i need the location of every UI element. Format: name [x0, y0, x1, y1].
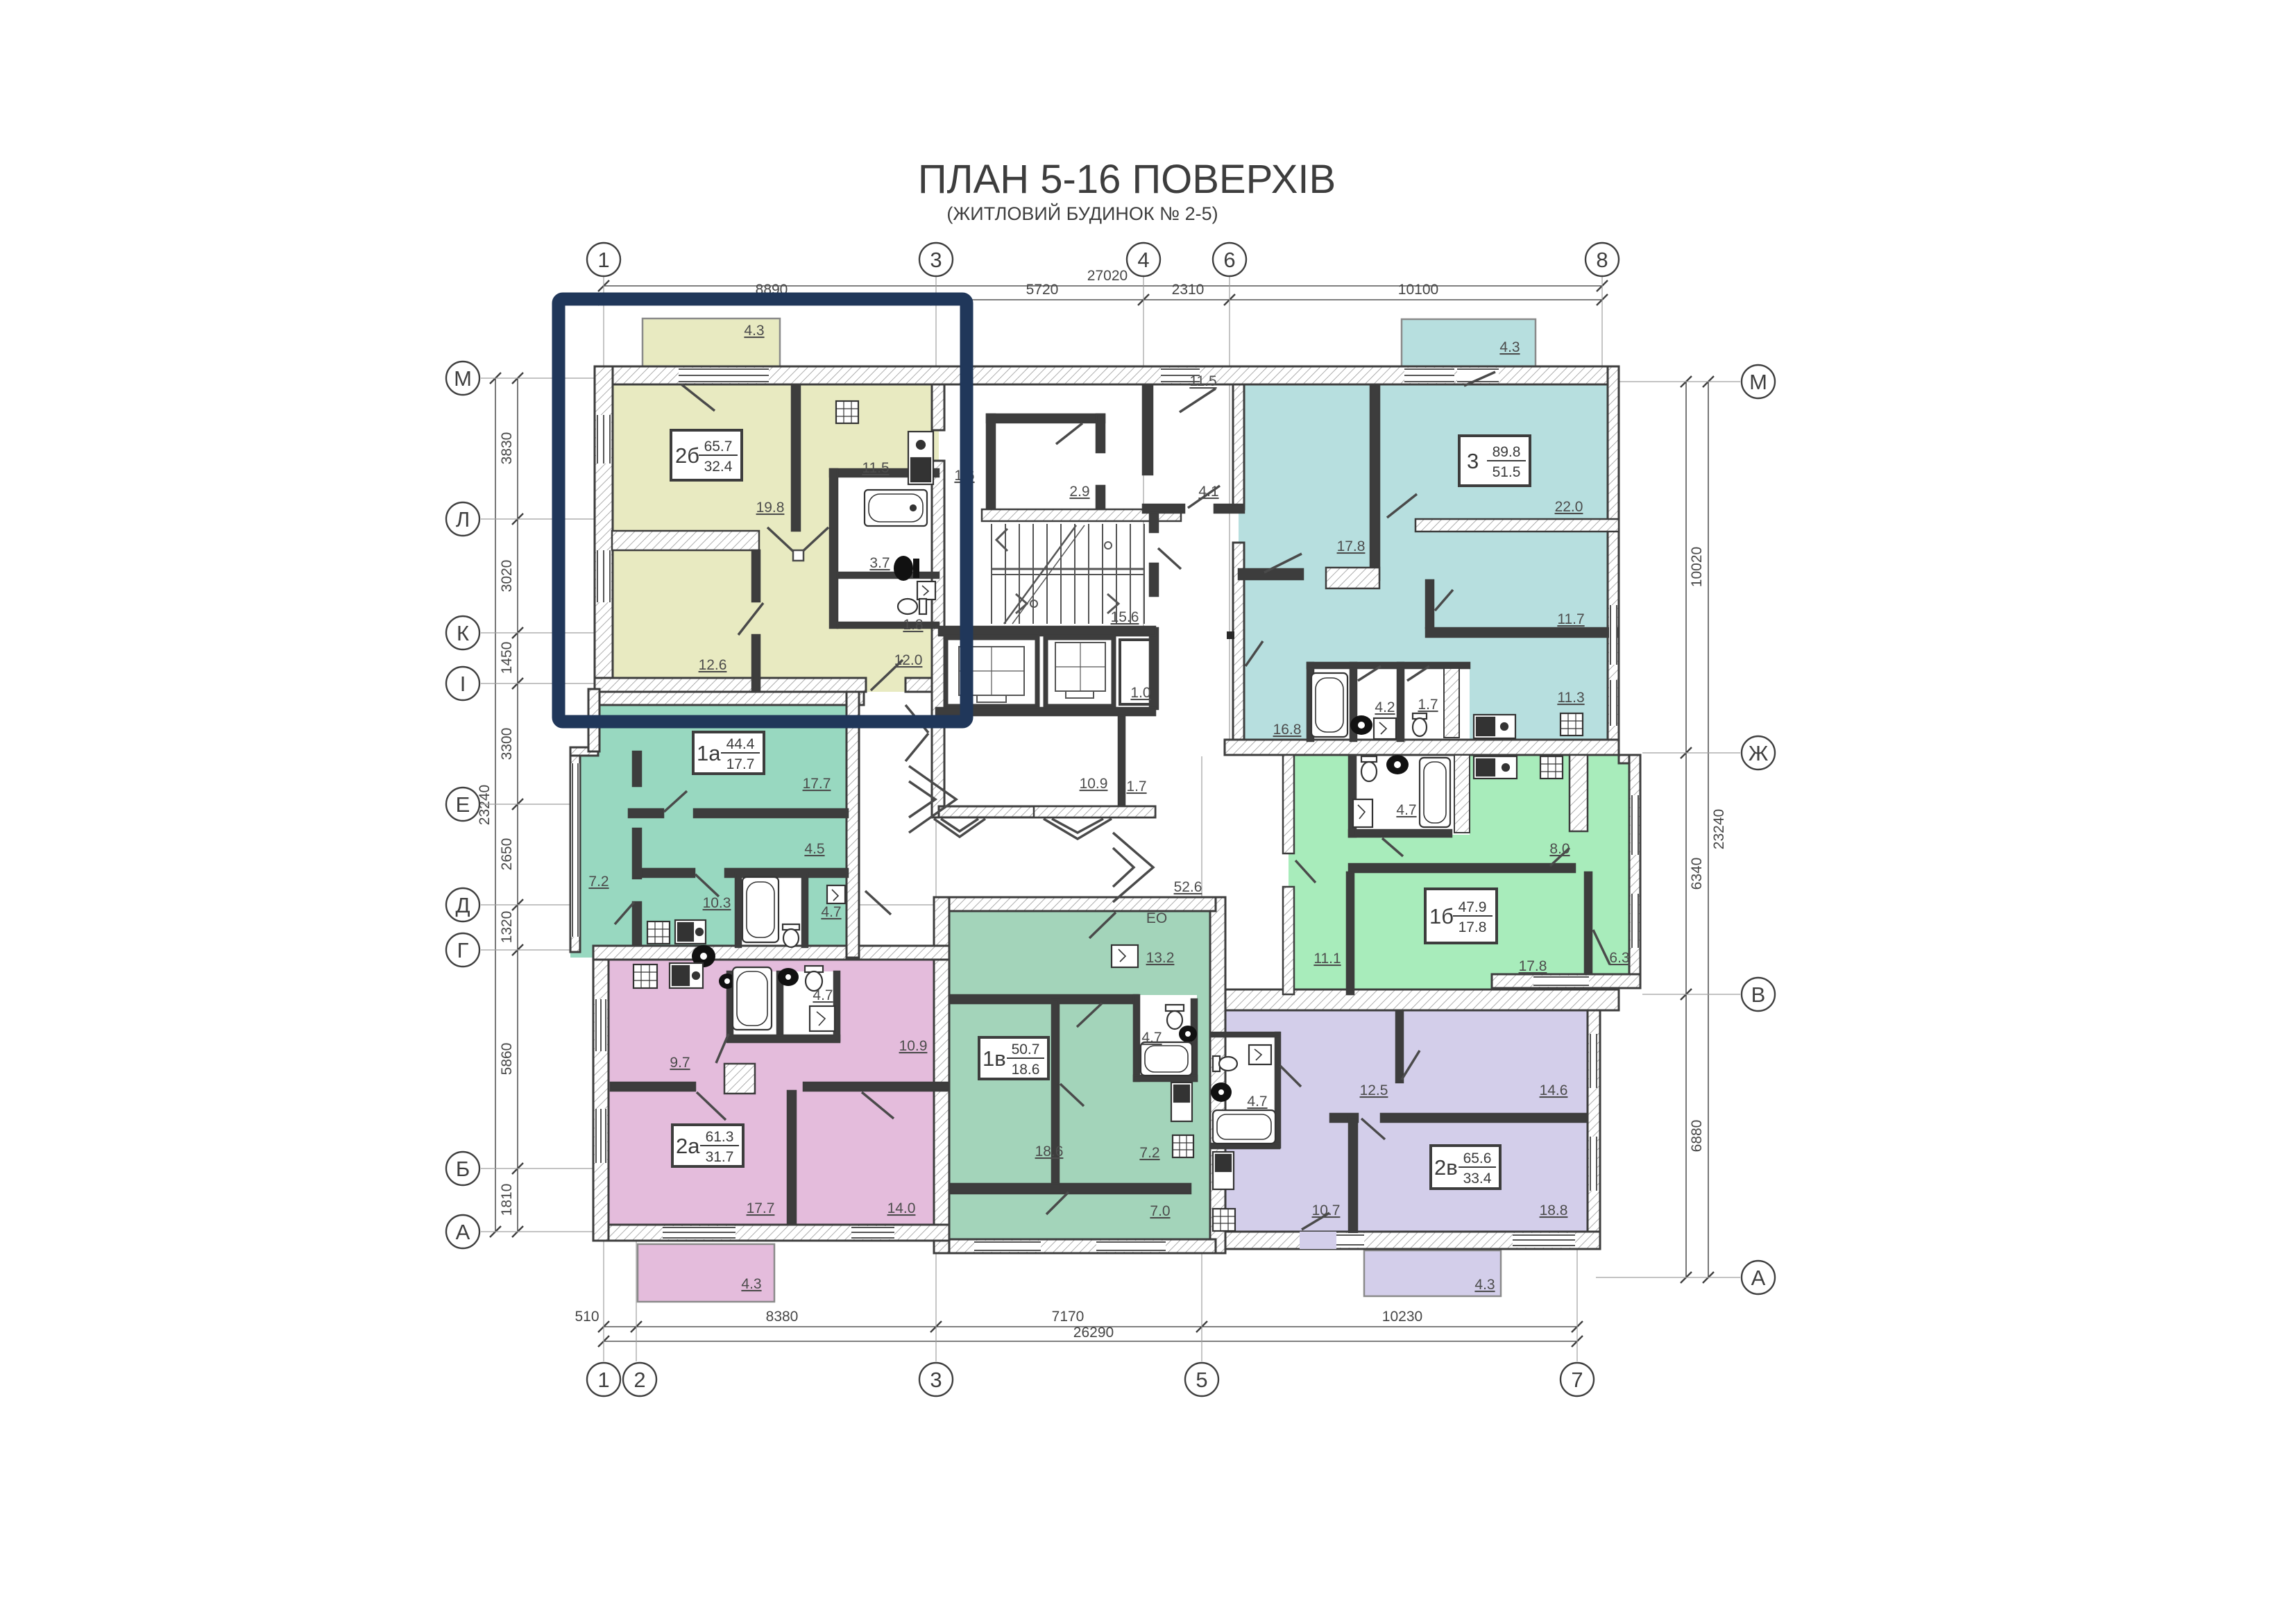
svg-text:Ж: Ж — [1749, 741, 1769, 765]
svg-text:11.3: 11.3 — [1557, 690, 1584, 706]
svg-text:6340: 6340 — [1689, 858, 1705, 890]
svg-text:Г: Г — [457, 938, 469, 962]
svg-text:31.7: 31.7 — [706, 1149, 734, 1165]
svg-text:1.7: 1.7 — [1418, 697, 1438, 713]
svg-text:М: М — [1749, 370, 1767, 394]
svg-text:Л: Л — [456, 507, 470, 532]
svg-text:2б: 2б — [675, 443, 699, 468]
svg-text:6880: 6880 — [1689, 1120, 1705, 1153]
svg-text:27020: 27020 — [1087, 268, 1128, 284]
svg-text:15.6: 15.6 — [1111, 609, 1139, 625]
svg-text:ПЛАН 5-16 ПОВЕРХІВ: ПЛАН 5-16 ПОВЕРХІВ — [918, 157, 1336, 202]
svg-text:1а: 1а — [697, 741, 721, 765]
svg-text:7.2: 7.2 — [1139, 1145, 1159, 1161]
svg-text:51.5: 51.5 — [1493, 464, 1521, 480]
svg-text:1: 1 — [597, 1368, 609, 1392]
svg-text:18.8: 18.8 — [1540, 1203, 1568, 1218]
svg-text:4.3: 4.3 — [1499, 339, 1520, 355]
svg-text:А: А — [456, 1220, 470, 1244]
svg-text:4.7: 4.7 — [1396, 802, 1416, 818]
svg-text:4.3: 4.3 — [741, 1276, 761, 1292]
svg-text:4.1: 4.1 — [1198, 484, 1218, 500]
svg-text:12.0: 12.0 — [894, 652, 923, 668]
svg-text:6: 6 — [1223, 248, 1235, 272]
svg-text:4.7: 4.7 — [1247, 1094, 1267, 1110]
svg-text:2: 2 — [633, 1368, 645, 1392]
svg-text:4.3: 4.3 — [1474, 1277, 1495, 1293]
svg-text:2.9: 2.9 — [1069, 484, 1089, 500]
svg-text:Е: Е — [456, 792, 470, 817]
svg-text:4.7: 4.7 — [813, 987, 833, 1003]
svg-text:8380: 8380 — [766, 1309, 799, 1325]
svg-text:26290: 26290 — [1073, 1325, 1114, 1341]
svg-text:32.4: 32.4 — [704, 459, 733, 475]
svg-text:3830: 3830 — [499, 432, 515, 465]
svg-text:18.6: 18.6 — [1035, 1144, 1064, 1159]
svg-text:В: В — [1751, 983, 1766, 1007]
svg-text:10.7: 10.7 — [1312, 1203, 1341, 1218]
svg-text:8.0: 8.0 — [1549, 841, 1570, 857]
svg-text:17.8: 17.8 — [1519, 958, 1547, 974]
svg-text:22.0: 22.0 — [1555, 499, 1583, 515]
svg-text:2а: 2а — [676, 1134, 700, 1158]
svg-text:65.6: 65.6 — [1463, 1150, 1492, 1166]
svg-text:І: І — [460, 672, 466, 696]
svg-text:3020: 3020 — [499, 560, 515, 593]
svg-text:А: А — [1751, 1266, 1766, 1290]
svg-text:16.8: 16.8 — [1273, 722, 1302, 738]
svg-text:33.4: 33.4 — [1463, 1171, 1492, 1187]
svg-text:1.8: 1.8 — [903, 617, 923, 633]
svg-text:12.6: 12.6 — [699, 657, 727, 673]
svg-text:4: 4 — [1137, 248, 1149, 272]
svg-text:5720: 5720 — [1026, 282, 1059, 298]
svg-text:4.7: 4.7 — [821, 904, 841, 920]
svg-text:44.4: 44.4 — [726, 736, 755, 752]
svg-text:3: 3 — [930, 248, 942, 272]
svg-text:4.7: 4.7 — [1141, 1030, 1162, 1046]
svg-text:Д: Д — [456, 893, 470, 917]
svg-text:7170: 7170 — [1052, 1309, 1085, 1325]
svg-text:14.0: 14.0 — [887, 1200, 916, 1216]
svg-text:61.3: 61.3 — [706, 1129, 734, 1145]
svg-text:10230: 10230 — [1382, 1309, 1422, 1325]
svg-text:(ЖИТЛОВИЙ БУДИНОК № 2-5): (ЖИТЛОВИЙ БУДИНОК № 2-5) — [946, 203, 1218, 224]
svg-text:11.5: 11.5 — [862, 460, 889, 476]
svg-text:ЕО: ЕО — [1146, 910, 1167, 926]
svg-text:13.2: 13.2 — [1146, 950, 1175, 966]
svg-text:2в: 2в — [1434, 1155, 1458, 1180]
svg-text:14.6: 14.6 — [1540, 1082, 1568, 1098]
svg-text:12.5: 12.5 — [1360, 1082, 1388, 1098]
svg-text:19.8: 19.8 — [756, 500, 785, 516]
svg-text:23240: 23240 — [1711, 809, 1727, 849]
svg-text:7: 7 — [1571, 1368, 1583, 1392]
svg-text:17.8: 17.8 — [1337, 538, 1366, 554]
svg-text:10.9: 10.9 — [899, 1038, 928, 1054]
svg-text:3: 3 — [930, 1368, 942, 1392]
svg-text:К: К — [457, 621, 469, 645]
svg-text:9.7: 9.7 — [670, 1055, 690, 1071]
svg-text:2650: 2650 — [499, 838, 515, 871]
svg-text:1320: 1320 — [499, 911, 515, 944]
svg-text:52.6: 52.6 — [1174, 879, 1202, 895]
svg-text:18.6: 18.6 — [1012, 1062, 1040, 1078]
svg-text:10.3: 10.3 — [703, 895, 731, 911]
svg-text:2310: 2310 — [1172, 282, 1205, 298]
svg-text:17.7: 17.7 — [747, 1200, 775, 1216]
svg-text:1б: 1б — [1429, 904, 1454, 928]
svg-text:1.0: 1.0 — [1130, 685, 1150, 701]
svg-text:7.2: 7.2 — [588, 874, 609, 890]
svg-text:М: М — [454, 366, 472, 391]
svg-text:5: 5 — [1196, 1368, 1207, 1392]
svg-text:3: 3 — [1467, 449, 1479, 473]
svg-text:11.7: 11.7 — [1557, 611, 1584, 627]
svg-text:11.5: 11.5 — [1189, 373, 1216, 389]
svg-text:4.3: 4.3 — [744, 323, 764, 339]
svg-text:50.7: 50.7 — [1012, 1042, 1040, 1057]
svg-text:65.7: 65.7 — [704, 439, 733, 454]
svg-text:1в: 1в — [983, 1046, 1006, 1071]
svg-text:17.7: 17.7 — [803, 776, 831, 792]
svg-text:1: 1 — [597, 248, 609, 272]
svg-text:4.5: 4.5 — [804, 841, 824, 857]
svg-text:8: 8 — [1596, 248, 1608, 272]
svg-text:17.7: 17.7 — [726, 756, 755, 772]
svg-text:7.0: 7.0 — [1150, 1203, 1170, 1219]
svg-text:10.9: 10.9 — [1080, 776, 1108, 792]
svg-text:5860: 5860 — [499, 1043, 515, 1076]
svg-text:89.8: 89.8 — [1493, 444, 1521, 460]
svg-text:510: 510 — [575, 1309, 599, 1325]
svg-text:3.7: 3.7 — [869, 555, 890, 571]
svg-text:47.9: 47.9 — [1459, 899, 1487, 915]
svg-text:1450: 1450 — [499, 642, 515, 674]
svg-text:1810: 1810 — [499, 1184, 515, 1216]
svg-text:11.1: 11.1 — [1313, 951, 1341, 967]
svg-text:3300: 3300 — [499, 728, 515, 760]
svg-text:4.2: 4.2 — [1375, 699, 1395, 715]
svg-text:17.8: 17.8 — [1459, 919, 1487, 935]
svg-text:6.3: 6.3 — [1609, 950, 1629, 966]
svg-text:1.7: 1.7 — [1126, 779, 1146, 794]
svg-text:Б: Б — [456, 1157, 470, 1181]
svg-text:10020: 10020 — [1689, 547, 1705, 587]
svg-text:10100: 10100 — [1398, 282, 1438, 298]
